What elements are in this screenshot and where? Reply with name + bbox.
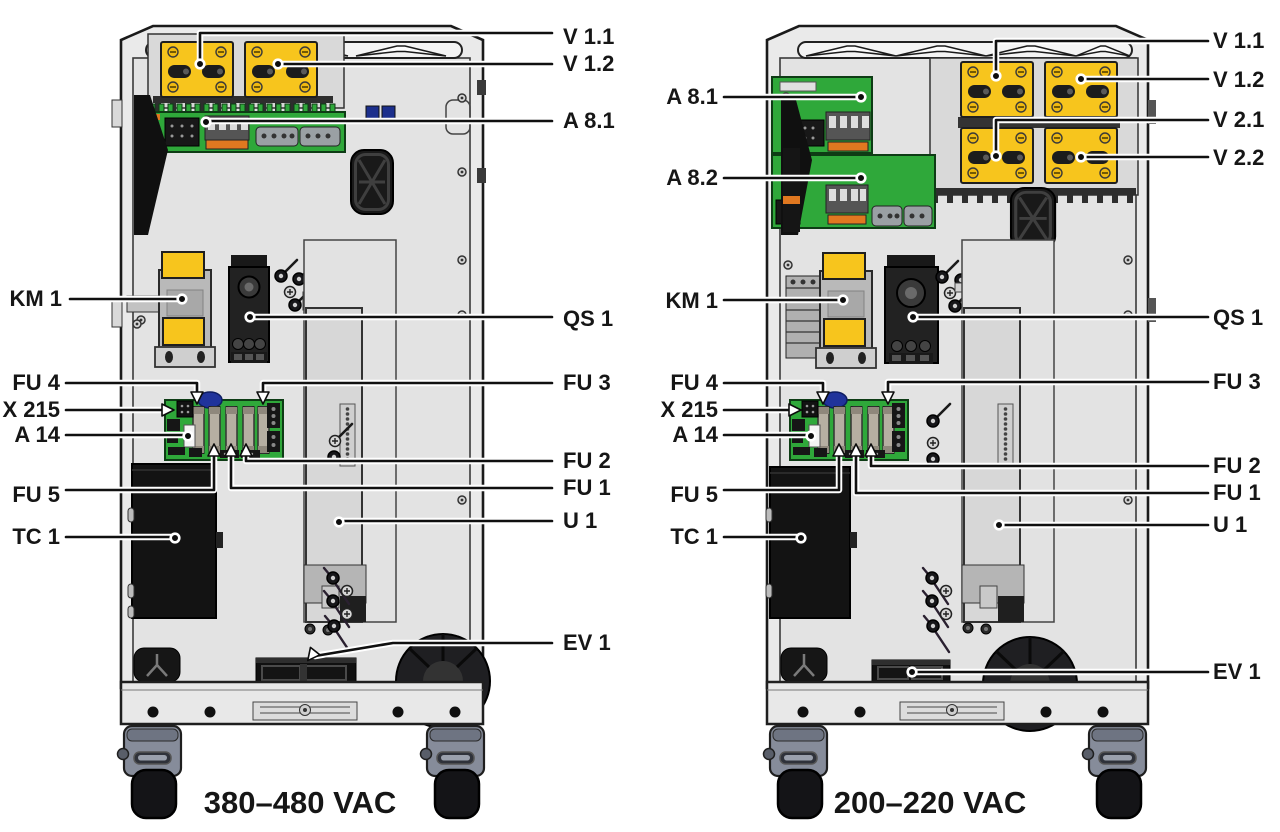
callout-label-fu4-left: FU 4	[12, 370, 60, 395]
qs1-switch	[229, 255, 269, 363]
caption-right-voltage: 200–220 VAC	[834, 785, 1026, 820]
callout-label-ev1-left: EV 1	[563, 630, 611, 655]
callout-label-a14-right: A 14	[672, 422, 718, 447]
base-plinth	[121, 682, 483, 724]
corner-bracket	[781, 648, 827, 682]
edge-tab	[477, 80, 486, 95]
ribbon-cable	[783, 148, 800, 232]
caster-wheel	[118, 726, 182, 818]
callout-label-v11-left: V 1.1	[563, 24, 614, 49]
fuse-board-a14	[165, 392, 283, 460]
callout-label-tc1-right: TC 1	[670, 524, 718, 549]
callout-label-a81-left: A 8.1	[563, 108, 615, 133]
callout-label-a81-right: A 8.1	[666, 84, 718, 109]
callout-label-fu5-right: FU 5	[670, 482, 718, 507]
qs1-switch	[885, 255, 938, 364]
fuse-board-a14	[790, 392, 908, 460]
caster-wheel	[421, 726, 485, 818]
callout-label-km1-left: KM 1	[9, 286, 62, 311]
callout-label-fu3-left: FU 3	[563, 370, 611, 395]
equipment-diagram: KM 1 FU 4 X 215 A 14 FU 5 TC 1 V 1.1 V 1…	[0, 0, 1280, 832]
callout-label-tc1-left: TC 1	[12, 524, 60, 549]
v1-2-module	[245, 42, 317, 97]
ribbon-connector	[783, 196, 800, 204]
right-cabinet	[764, 26, 1157, 818]
callout-label-fu1-left: FU 1	[563, 475, 611, 500]
callout-label-fu2-right: FU 2	[1213, 453, 1261, 478]
v1-2-module	[1045, 62, 1117, 117]
callout-label-fu1-right: FU 1	[1213, 480, 1261, 505]
caster-wheel	[764, 726, 828, 818]
hinge-tab	[112, 100, 122, 127]
left-cabinet	[112, 26, 490, 818]
callout-label-qs1-left: QS 1	[563, 306, 613, 331]
terminal-blocks	[786, 276, 820, 358]
handle-grommet	[351, 150, 393, 214]
callout-label-ev1-right: EV 1	[1213, 659, 1261, 684]
callout-label-u1-left: U 1	[563, 508, 597, 533]
callout-label-fu5-left: FU 5	[12, 482, 60, 507]
callout-label-km1-right: KM 1	[665, 288, 718, 313]
callout-label-x215-right: X 215	[661, 397, 719, 422]
base-plinth	[767, 682, 1148, 724]
km1-contactor	[155, 252, 215, 367]
u1-drive-unit	[962, 240, 1054, 634]
callout-label-fu3-right: FU 3	[1213, 369, 1261, 394]
callout-label-u1-right: U 1	[1213, 512, 1247, 537]
callout-label-v12-left: V 1.2	[563, 51, 614, 76]
callout-label-x215-left: X 215	[3, 397, 61, 422]
callout-label-v11-right: V 1.1	[1213, 28, 1264, 53]
corner-bracket	[134, 648, 180, 682]
callout-label-v12-right: V 1.2	[1213, 67, 1264, 92]
km1-contactor	[816, 253, 876, 368]
callout-label-a14-left: A 14	[14, 422, 60, 447]
callout-label-fu2-left: FU 2	[563, 448, 611, 473]
callout-label-v21-right: V 2.1	[1213, 107, 1264, 132]
caption-left-voltage: 380–480 VAC	[204, 785, 396, 820]
callout-label-fu4-right: FU 4	[670, 370, 718, 395]
u1-drive-unit	[304, 240, 396, 635]
hinge-tab	[112, 300, 122, 327]
ev1-fan	[256, 658, 356, 683]
figure: KM 1 FU 4 X 215 A 14 FU 5 TC 1 V 1.1 V 1…	[0, 0, 1280, 832]
callout-label-v22-right: V 2.2	[1213, 145, 1264, 170]
caster-wheel	[1083, 726, 1147, 818]
callout-label-qs1-right: QS 1	[1213, 305, 1263, 330]
callout-label-a82-right: A 8.2	[666, 165, 718, 190]
edge-tab	[477, 168, 486, 183]
